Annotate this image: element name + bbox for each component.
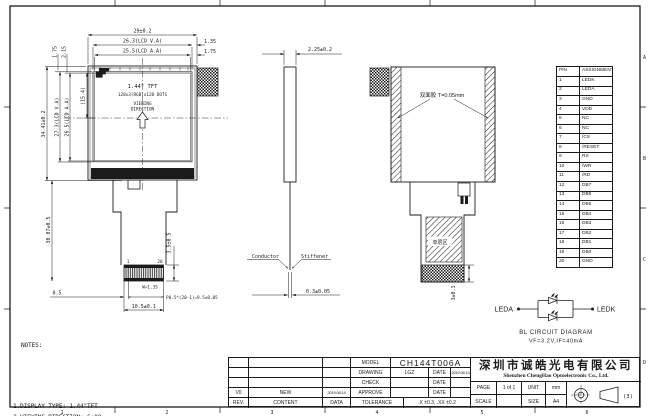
pin-assignment-cell: DB3 — [580, 220, 613, 230]
rev-cell-empty — [229, 358, 249, 368]
pin-assignment-cell: VDD — [580, 105, 613, 115]
pin-table-row: 15 DB4 — [557, 210, 613, 220]
pin-table-row: 2 LEDA — [557, 86, 613, 96]
scale-value-cell — [497, 395, 522, 408]
note-line: 1.DISPLAY TYPE: 1.44"TFT — [13, 402, 228, 412]
dim-175-right: 1.75 — [204, 49, 216, 55]
check-value-cell — [391, 378, 429, 388]
pin-assignment-cell: GND — [580, 258, 613, 268]
bl-node-anode — [517, 308, 520, 311]
rev-cell-empty — [229, 378, 249, 388]
pin-number-cell: 18 — [557, 239, 580, 249]
dim-fpc-length: 30.07±0.5 — [46, 216, 52, 243]
bl-circuit-spec: VF=3.2V,IF=40mA — [529, 339, 583, 345]
pin-assignment-cell: NC — [580, 124, 613, 134]
pin-table-row: 17 DB2 — [557, 229, 613, 239]
pin-assignment-cell: /WR — [580, 162, 613, 172]
panel-viewing-label-1: VIEWING — [133, 101, 152, 107]
side-panel-outline — [284, 67, 296, 182]
pin-number-cell: 10 — [557, 162, 580, 172]
pin-number-cell: 2 — [557, 86, 580, 96]
pin-number-cell: 11 — [557, 172, 580, 182]
company-cell: 深圳市诚皓光电有限公司 Shenzhen ChengHao Optoelectr… — [471, 358, 641, 382]
pin-table-row: 8 /RESET — [557, 143, 613, 153]
data-header-cell: DATA — [323, 398, 351, 408]
side-view-labels: 2.25±0.2 Conductor Stiffener 0.3±0.05 — [252, 47, 332, 295]
pin-table-row: 14 DB5 — [557, 201, 613, 211]
pin-assignment-cell: DB0 — [580, 248, 613, 258]
dim-aa-width: 25.5(LCD A.A) — [123, 49, 162, 55]
pin-number-cell: 7 — [557, 134, 580, 144]
front-tape-block — [197, 68, 218, 96]
dim-215-top: 2.15 — [62, 46, 68, 58]
side-view — [284, 67, 296, 270]
drawing-sheet: 1 2 3 4 5 6 A B C D — [0, 0, 650, 416]
dim-thickness: 2.25±0.2 — [308, 47, 332, 53]
dim-aa-height: 26.5(LCD A.A) — [65, 97, 71, 136]
rev-cell-empty — [323, 368, 351, 378]
pin-number-cell: 17 — [557, 229, 580, 239]
approve-label-cell: APPROVE — [351, 388, 391, 398]
side-view-dimensions — [247, 50, 342, 298]
panel-resolution-label: 128x3(RGB)x128 DOTS — [118, 92, 168, 98]
pin-table-header-row: PIN ASSIGNMENT — [557, 67, 613, 77]
pin-number-cell: 3 — [557, 96, 580, 106]
rev-cell-empty — [323, 358, 351, 368]
zone-number: 5 — [480, 410, 483, 416]
pin-table: PIN ASSIGNMENT 1 LEDK 2 LEDA 3 GND — [556, 66, 613, 268]
pin-table-row: 1 LEDK — [557, 77, 613, 87]
size-label-cell: SIZE — [522, 395, 546, 408]
pin-first-label: 1 — [127, 259, 130, 265]
rev-content-cell: NEW — [249, 388, 323, 398]
dim-135: 1.35 — [204, 39, 216, 45]
pin-assignment-cell: RS — [580, 153, 613, 163]
pin-col-header: PIN — [557, 67, 580, 77]
unit-label-cell: UNIT — [522, 382, 546, 395]
dim-connector-width: 10.5±0.1 — [132, 304, 156, 310]
model-label-cell: MODEL — [351, 358, 391, 368]
front-tab — [128, 180, 140, 189]
rev-header-cell: REV. — [229, 398, 249, 408]
tape-label: 双面胶 T=0.05mm — [420, 91, 465, 99]
pin-number-cell: 4 — [557, 105, 580, 115]
pin-assignment-cell: /CS — [580, 134, 613, 144]
pin-number-cell: 12 — [557, 182, 580, 192]
approve-date-cell — [451, 388, 471, 398]
size-value-cell: A4 — [546, 395, 567, 408]
check-label-cell: CHECK — [351, 378, 391, 388]
pin-assignment-cell: DB1 — [580, 239, 613, 249]
pin-assignment-cell: LEDK — [580, 77, 613, 87]
pin-number-cell: 15 — [557, 210, 580, 220]
zone-letter: B — [643, 156, 646, 162]
pin-table-body: 1 LEDK 2 LEDA 3 GND 4 VDD — [557, 77, 613, 268]
date-label-cell: DATE — [429, 378, 451, 388]
zone-letter: D — [643, 360, 646, 366]
panel-size-label: 1.44" TFT — [128, 84, 158, 90]
back-bl-contact — [458, 183, 470, 196]
bezel-tabs — [100, 67, 188, 71]
rev-cell-empty — [323, 378, 351, 388]
back-tape-strip-right — [485, 67, 495, 182]
pin-table-row: 12 DB7 — [557, 182, 613, 192]
date-label-cell: DATE — [429, 368, 451, 378]
pin-table-row: 3 GND — [557, 96, 613, 106]
pin-number-cell: 20 — [557, 258, 580, 268]
leda-label: LEDA — [495, 307, 514, 314]
dim-overall-height: 34.41±0.2 — [41, 110, 47, 137]
dim-pin-width: W=1.35 — [142, 285, 158, 291]
pin-number-cell: 13 — [557, 191, 580, 201]
date-label-cell: DATE — [429, 388, 451, 398]
pin-assignment-cell: DB4 — [580, 210, 613, 220]
pin-number-cell: 1 — [557, 77, 580, 87]
back-tape-block — [370, 68, 389, 96]
drawing-value-cell: LGZ — [391, 368, 429, 378]
pin-assignment-cell: DB5 — [580, 201, 613, 211]
dim-overall-width: 29±0.2 — [133, 29, 151, 35]
check-date-cell — [451, 378, 471, 388]
pin-table-row: 11 /RD — [557, 172, 613, 182]
back-tape-strip-left — [391, 67, 401, 182]
zone-letter: A — [643, 55, 646, 61]
company-name-en: Shenzhen ChengHao Optoelectronic Co., Lt… — [503, 373, 608, 380]
pin-number-cell: 5 — [557, 115, 580, 125]
pin-table-row: 20 GND — [557, 258, 613, 268]
pin-assignment-cell: DB2 — [580, 229, 613, 239]
back-module-outline — [391, 67, 495, 182]
drawing-date-cell: 2019.08.14 — [451, 368, 471, 378]
back-view — [370, 67, 495, 282]
dim-margin: 0.5 — [52, 291, 61, 297]
pin-table-row: 5 NC — [557, 115, 613, 125]
ledk-label: LEDK — [597, 307, 616, 314]
rev-cell-empty — [229, 368, 249, 378]
pin-table-row: 6 NC — [557, 124, 613, 134]
projection-symbol: (3) — [567, 382, 641, 408]
pin-table-row: 7 /CS — [557, 134, 613, 144]
rev-cell-empty — [249, 368, 323, 378]
content-header-cell: CONTENT — [249, 398, 323, 408]
dim-154: (15.4) — [81, 87, 87, 105]
bl-circuit-title: BL CIRCUIT DIAGRAM — [519, 330, 592, 336]
pin-assignment-cell: DB6 — [580, 191, 613, 201]
projection-symbol-cell: (3) — [567, 382, 641, 408]
pin-number-cell: 14 — [557, 201, 580, 211]
pin-assignment-cell: LEDA — [580, 86, 613, 96]
pin-table-row: 19 DB0 — [557, 248, 613, 258]
dim-fpc-thickness: 0.3±0.05 — [306, 289, 330, 295]
pin-assignment-cell: /RESET — [580, 143, 613, 153]
unit-value-cell: mm — [546, 382, 567, 395]
single-layer-label: 单层区 — [432, 239, 447, 246]
front-view — [64, 58, 228, 281]
bl-circuit — [517, 294, 594, 321]
pin-assignment-cell: NC — [580, 115, 613, 125]
pin-table-row: 4 VDD — [557, 105, 613, 115]
pin-assignment-cell: DB7 — [580, 182, 613, 192]
pin-number-cell: 8 — [557, 143, 580, 153]
model-value-cell: CH144T006A — [391, 358, 471, 368]
pin-table-row: 9 RS — [557, 153, 613, 163]
pin-assignment-cell: /RD — [580, 172, 613, 182]
viewing-direction-arrow — [137, 112, 148, 128]
pin-table-row: 13 DB6 — [557, 191, 613, 201]
dim-pitch: P0.5*(20-1)=9.5±0.05 — [166, 295, 218, 301]
conductor-label: Conductor — [252, 254, 279, 260]
front-corner-mark — [96, 68, 109, 78]
pin-table-row: 18 DB1 — [557, 239, 613, 249]
back-contact-zone — [422, 265, 464, 282]
dim-175-top: 1.75 — [53, 46, 59, 58]
tolerance-value-cell: .X ±0.3, .XX ±0.2 — [404, 398, 471, 408]
zone-letter: C — [643, 257, 646, 263]
rev-version-cell: V0 — [229, 388, 249, 398]
assignment-col-header: ASSIGNMENT — [580, 67, 613, 77]
rev-cell-empty — [249, 358, 323, 368]
led-symbol-top — [549, 294, 558, 304]
zone-number: 4 — [375, 410, 378, 416]
pin-last-label: 20 — [157, 259, 163, 265]
tolerance-label-cell: TOLERANCE — [351, 398, 404, 408]
page-value-cell: 1 of 1 — [497, 382, 522, 395]
dim-connector-height: 3.5±0.5 — [167, 232, 173, 253]
pin-number-cell: 19 — [557, 248, 580, 258]
pin-number-cell: 9 — [557, 153, 580, 163]
notes-block: NOTES: 1.DISPLAY TYPE: 1.44"TFT2.VIEWING… — [13, 320, 228, 416]
bl-node-cathode — [591, 308, 594, 311]
zone-number: 3 — [270, 410, 273, 416]
pin-number-cell: 6 — [557, 124, 580, 134]
notes-title: NOTES: — [13, 341, 228, 351]
led-symbol-bottom — [549, 311, 558, 321]
approve-value-cell — [391, 388, 429, 398]
panel-viewing-label-2: DIRECTION — [131, 107, 155, 113]
page-label-cell: PAGE — [471, 382, 497, 395]
pin-number-cell: 16 — [557, 220, 580, 230]
company-name-cn: 深圳市诚皓光电有限公司 — [479, 360, 633, 373]
bl-circuit-labels: LEDA LEDK BL CIRCUIT DIAGRAM VF=3.2V,IF=… — [495, 307, 616, 345]
dim-contact-height: 3±0.3 — [451, 285, 457, 300]
rev-date-cell: 2019.08.14 — [323, 388, 351, 398]
drawing-label-cell: DRAWING — [351, 368, 391, 378]
rev-cell-empty — [249, 378, 323, 388]
scale-label-cell: SCALE — [471, 395, 497, 408]
stiffener-label: Stiffener — [301, 254, 328, 260]
projection-angle-label: (3) — [623, 394, 633, 400]
notes-list: 1.DISPLAY TYPE: 1.44"TFT2.VIEWING DIRECT… — [13, 371, 228, 416]
pin-assignment-cell: GND — [580, 96, 613, 106]
dim-va-width: 26.3(LCD V.A) — [123, 39, 162, 45]
pin-table-row: 16 DB3 — [557, 220, 613, 230]
zone-number: 6 — [585, 410, 588, 416]
title-block: V0 NEW 2019.08.14 REV. CONTENT DATA MODE… — [228, 357, 640, 407]
pin-table-row: 10 /WR — [557, 162, 613, 172]
dim-va-height: 27.3(LCD V.A) — [55, 97, 61, 136]
